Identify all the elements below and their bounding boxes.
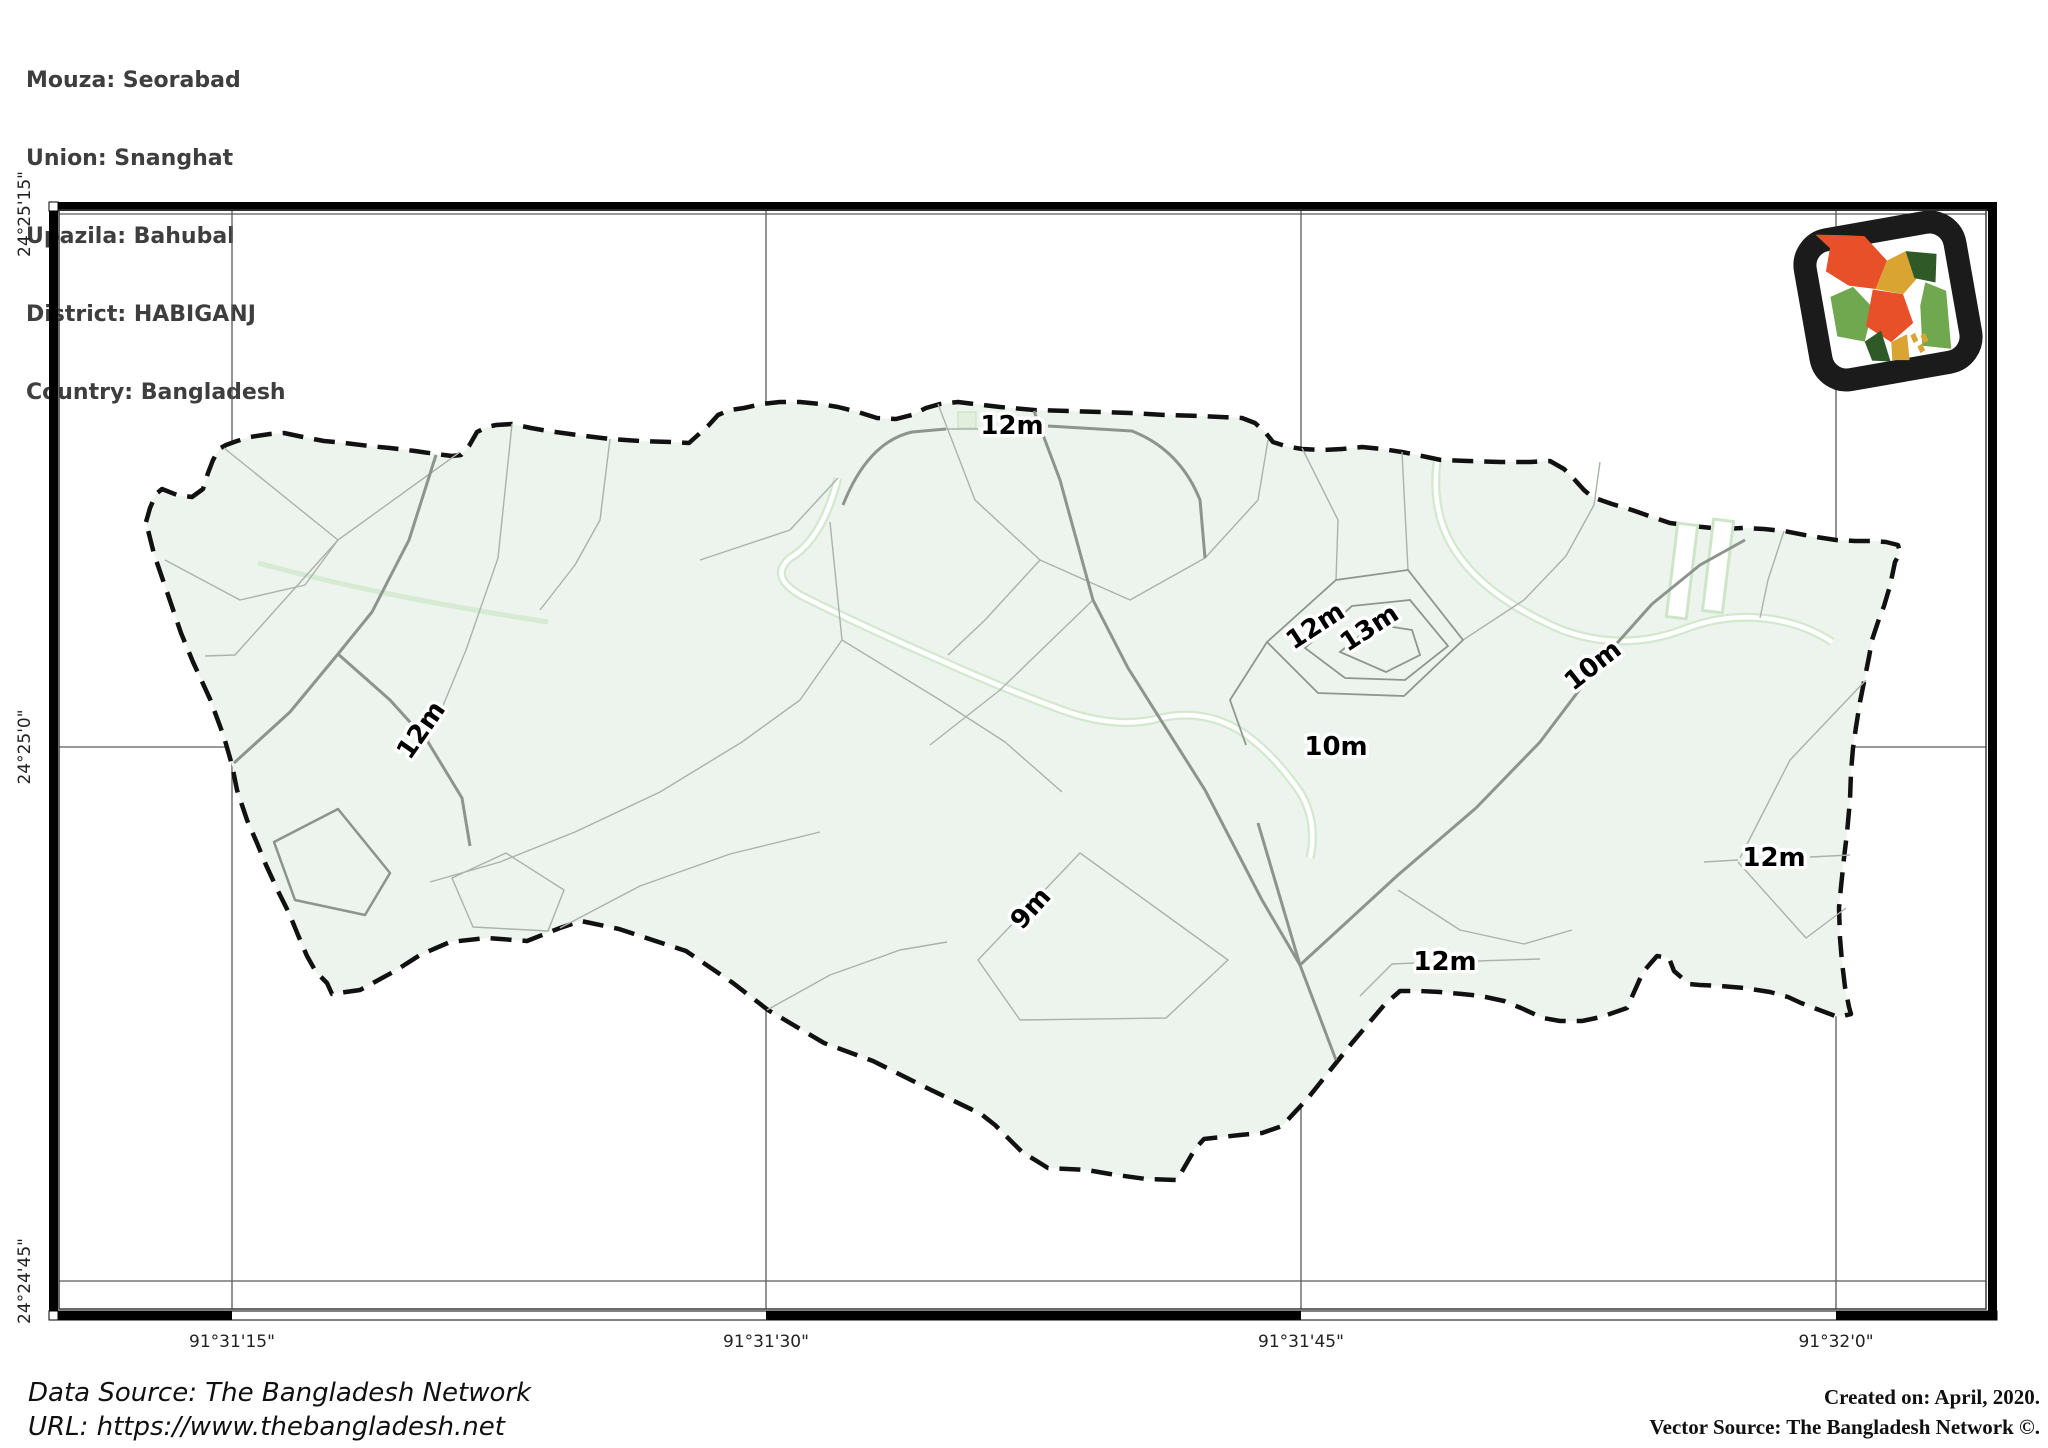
footer-credit-block: Created on: April, 2020. Vector Source: …: [1649, 1382, 2040, 1442]
frame-right-bar: [1988, 202, 1997, 1320]
map-canvas: 12m12m12m13m10m10m9m12m12m 91°31'15"91°3…: [0, 0, 2048, 1448]
longitude-label: 91°31'45": [1258, 1332, 1344, 1352]
elevation-label-10m: 10m: [1304, 732, 1367, 762]
frame-corner-square: [49, 202, 58, 211]
frame-left-bar: [49, 202, 58, 1320]
frame-bottom-zebra-segment: [766, 1311, 1301, 1320]
small-pond: [958, 412, 976, 428]
url-text: URL: https://www.thebangladesh.net: [28, 1410, 531, 1444]
frame-bottom-zebra-segment: [1836, 1311, 1997, 1320]
latitude-label: 24°25'0": [15, 709, 35, 784]
longitude-label: 91°31'30": [723, 1332, 809, 1352]
bangladesh-logo: [1800, 211, 1976, 384]
longitude-label: 91°32'0": [1798, 1332, 1873, 1352]
longitude-label: 91°31'15": [189, 1332, 275, 1352]
map-sheet: Mouza: Seorabad Union: Snanghat Upazila:…: [0, 0, 2048, 1448]
data-source-text: Data Source: The Bangladesh Network: [28, 1376, 531, 1410]
mouza-region: [146, 402, 1900, 1180]
latitude-label: 24°25'15": [15, 171, 35, 257]
mouza-boundary-polygon: [146, 402, 1900, 1180]
elevation-label-12m: 12m: [1742, 843, 1805, 873]
frame-corner-square: [49, 1311, 58, 1320]
elevation-label-12m: 12m: [980, 411, 1043, 441]
footer-source-block: Data Source: The Bangladesh Network URL:…: [28, 1376, 531, 1444]
frame-bottom-zebra-segment: [49, 1311, 232, 1320]
elevation-label-12m: 12m: [1413, 947, 1476, 977]
vector-source-text: Vector Source: The Bangladesh Network ©.: [1649, 1412, 2040, 1442]
created-on-text: Created on: April, 2020.: [1649, 1382, 2040, 1412]
contour-label-tick: [1392, 963, 1414, 964]
latitude-label: 24°24'45": [15, 1238, 35, 1324]
